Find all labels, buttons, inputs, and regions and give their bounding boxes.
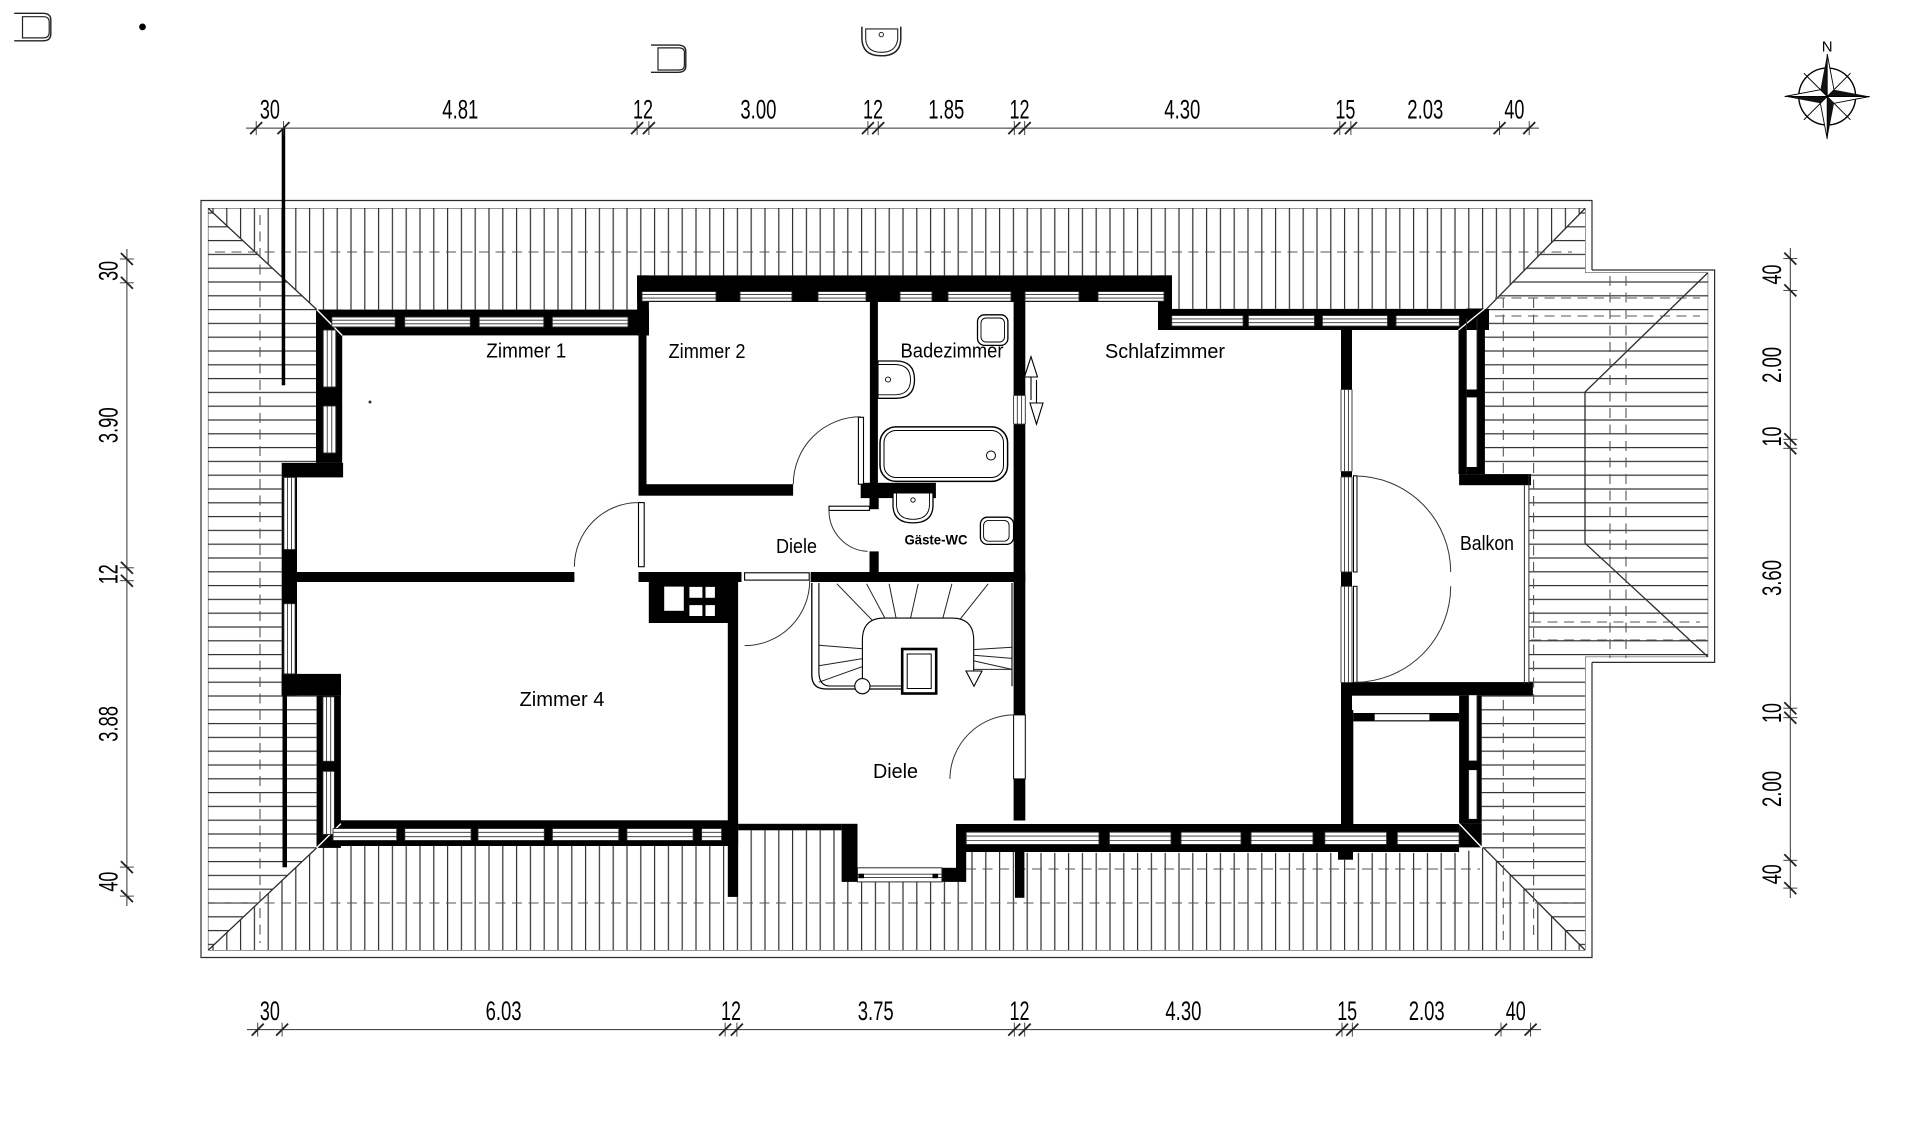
svg-text:12: 12	[1010, 996, 1030, 1026]
svg-text:4.30: 4.30	[1164, 94, 1200, 124]
svg-text:3.75: 3.75	[858, 996, 894, 1026]
svg-text:3.90: 3.90	[94, 407, 124, 443]
svg-text:Diele: Diele	[873, 761, 918, 783]
svg-text:1.85: 1.85	[928, 94, 964, 124]
svg-text:40: 40	[1757, 864, 1787, 884]
svg-text:10: 10	[1757, 427, 1787, 447]
svg-text:30: 30	[260, 996, 280, 1026]
svg-text:3.60: 3.60	[1757, 560, 1787, 596]
svg-text:Balkon: Balkon	[1460, 533, 1514, 555]
svg-text:4.30: 4.30	[1165, 996, 1201, 1026]
svg-text:Zimmer 2: Zimmer 2	[669, 341, 746, 363]
svg-text:N: N	[1822, 39, 1833, 56]
svg-text:Zimmer 4: Zimmer 4	[520, 689, 605, 711]
svg-text:2.03: 2.03	[1409, 996, 1445, 1026]
svg-text:Schlafzimmer: Schlafzimmer	[1105, 341, 1225, 363]
svg-text:2.03: 2.03	[1407, 94, 1443, 124]
svg-text:30: 30	[260, 94, 280, 124]
svg-text:12: 12	[633, 94, 653, 124]
svg-text:12: 12	[94, 564, 124, 584]
svg-text:40: 40	[1757, 265, 1787, 285]
svg-text:12: 12	[721, 996, 741, 1026]
svg-text:15: 15	[1335, 94, 1355, 124]
svg-text:30: 30	[94, 261, 124, 281]
svg-text:Zimmer 1: Zimmer 1	[486, 341, 566, 363]
svg-text:6.03: 6.03	[486, 996, 522, 1026]
svg-text:12: 12	[863, 94, 883, 124]
svg-text:12: 12	[1010, 94, 1030, 124]
svg-text:3.00: 3.00	[740, 94, 776, 124]
svg-text:4.81: 4.81	[442, 94, 478, 124]
svg-text:3.88: 3.88	[94, 706, 124, 742]
svg-text:2.00: 2.00	[1757, 771, 1787, 807]
svg-text:Gäste-WC: Gäste-WC	[905, 531, 968, 547]
svg-text:40: 40	[94, 872, 124, 892]
svg-text:Diele: Diele	[776, 536, 817, 558]
svg-text:Badezimmer: Badezimmer	[901, 341, 1004, 363]
svg-text:40: 40	[1504, 94, 1524, 124]
svg-text:2.00: 2.00	[1757, 347, 1787, 383]
svg-text:10: 10	[1757, 703, 1787, 723]
svg-text:40: 40	[1506, 996, 1526, 1026]
svg-text:15: 15	[1337, 996, 1357, 1026]
